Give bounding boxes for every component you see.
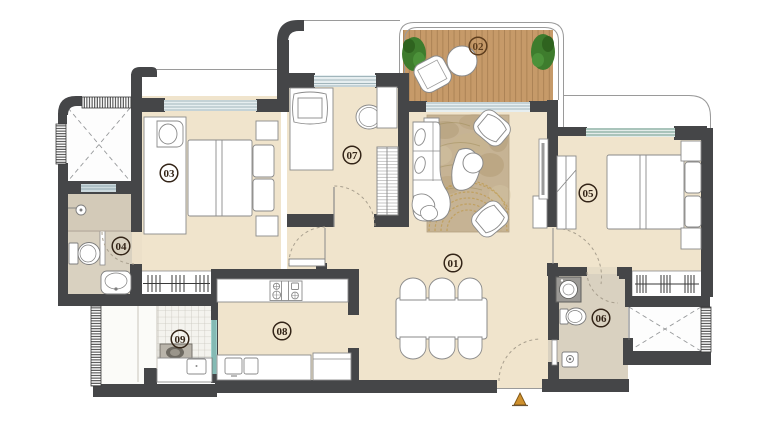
svg-text:05: 05 — [583, 188, 595, 200]
svg-text:09: 09 — [175, 334, 187, 346]
svg-text:01: 01 — [448, 258, 459, 270]
svg-text:03: 03 — [164, 168, 176, 180]
svg-text:04: 04 — [116, 241, 128, 253]
svg-text:06: 06 — [596, 313, 608, 325]
svg-text:08: 08 — [277, 326, 289, 338]
svg-text:07: 07 — [347, 150, 359, 162]
svg-text:02: 02 — [473, 41, 485, 53]
